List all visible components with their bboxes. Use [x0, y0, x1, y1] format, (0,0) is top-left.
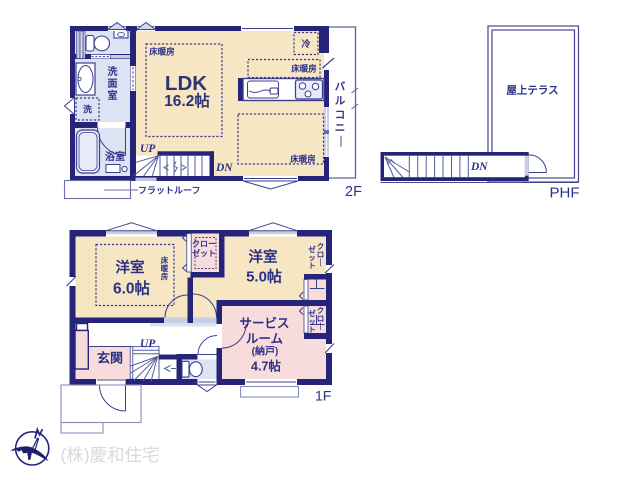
svg-text:ト: ト: [308, 261, 316, 270]
svg-text:｜: ｜: [317, 321, 325, 331]
svg-text:洗: 洗: [108, 65, 118, 78]
svg-text:バ: バ: [335, 81, 346, 93]
svg-text:DN: DN: [470, 161, 488, 173]
svg-text:16.2帖: 16.2帖: [164, 91, 210, 110]
svg-text:2F: 2F: [345, 184, 362, 200]
svg-text:床暖房: 床暖房: [291, 64, 317, 74]
svg-text:床暖房: 床暖房: [149, 47, 175, 57]
svg-text:玄関: 玄関: [97, 351, 123, 366]
svg-text:UP: UP: [140, 338, 156, 350]
svg-text:PHF: PHF: [550, 185, 580, 202]
svg-text:冷: 冷: [301, 38, 310, 49]
svg-text:LDK: LDK: [165, 72, 207, 95]
svg-text:1F: 1F: [315, 388, 331, 404]
svg-text:洋室: 洋室: [116, 259, 145, 277]
svg-text:｜: ｜: [317, 257, 325, 267]
svg-text:フラットルーフ: フラットルーフ: [138, 186, 200, 196]
svg-text:UP: UP: [140, 143, 156, 155]
svg-text:室: 室: [108, 89, 118, 102]
svg-text:ニ: ニ: [335, 122, 346, 134]
svg-text:サービス: サービス: [239, 316, 289, 331]
svg-text:洋室: 洋室: [249, 248, 278, 266]
svg-text:DN: DN: [215, 162, 233, 174]
svg-text:5.0帖: 5.0帖: [246, 268, 282, 286]
svg-text:ルーム: ルーム: [246, 332, 284, 346]
svg-text:クロー: クロー: [192, 239, 216, 249]
svg-text:浴室: 浴室: [105, 150, 125, 163]
svg-text:洗: 洗: [83, 104, 92, 115]
svg-text:6.0帖: 6.0帖: [113, 279, 151, 298]
svg-text:面: 面: [108, 78, 118, 90]
svg-text:(株)慶和住宅: (株)慶和住宅: [61, 445, 160, 465]
svg-text:ル: ル: [335, 95, 346, 107]
svg-text:コ: コ: [335, 109, 346, 121]
svg-text:4.7帖: 4.7帖: [251, 359, 281, 374]
svg-text:ゼット: ゼット: [192, 248, 216, 258]
svg-text:(納戸): (納戸): [252, 345, 279, 358]
svg-text:ト: ト: [308, 325, 316, 334]
svg-text:屋上テラス: 屋上テラス: [506, 84, 558, 97]
svg-text:房: 房: [161, 271, 169, 281]
svg-text:｜: ｜: [336, 135, 347, 148]
svg-text:床暖房: 床暖房: [290, 154, 316, 164]
